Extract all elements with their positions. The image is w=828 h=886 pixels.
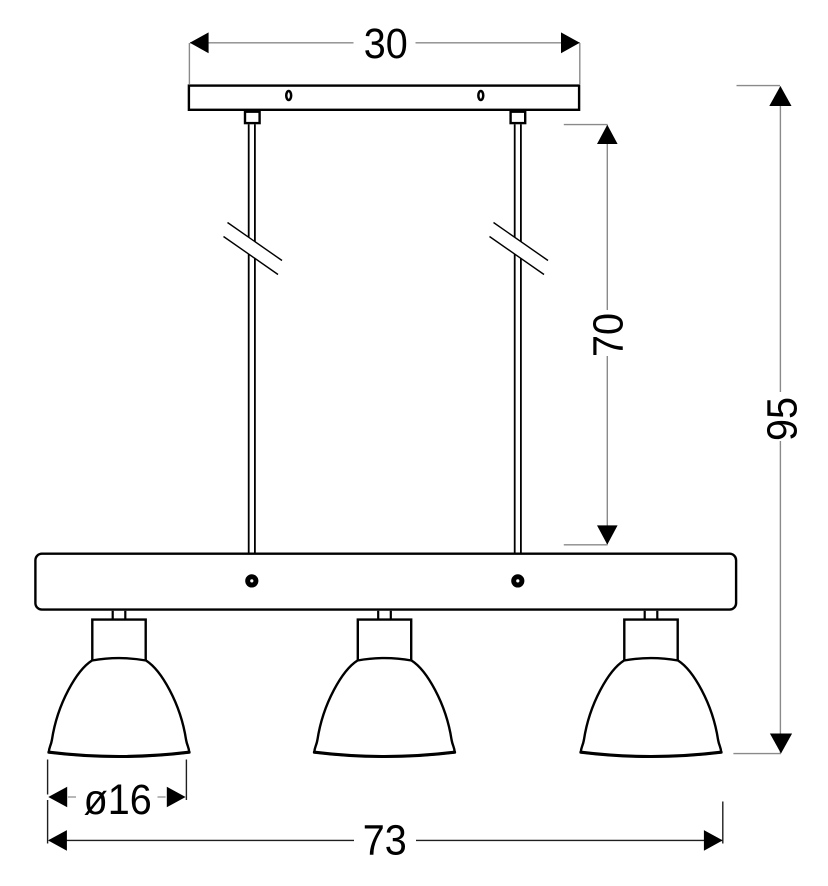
svg-text:30: 30 (364, 19, 408, 67)
svg-text:ø16: ø16 (84, 775, 152, 823)
svg-text:70: 70 (584, 313, 632, 357)
svg-text:73: 73 (363, 816, 407, 864)
svg-text:95: 95 (758, 397, 806, 441)
